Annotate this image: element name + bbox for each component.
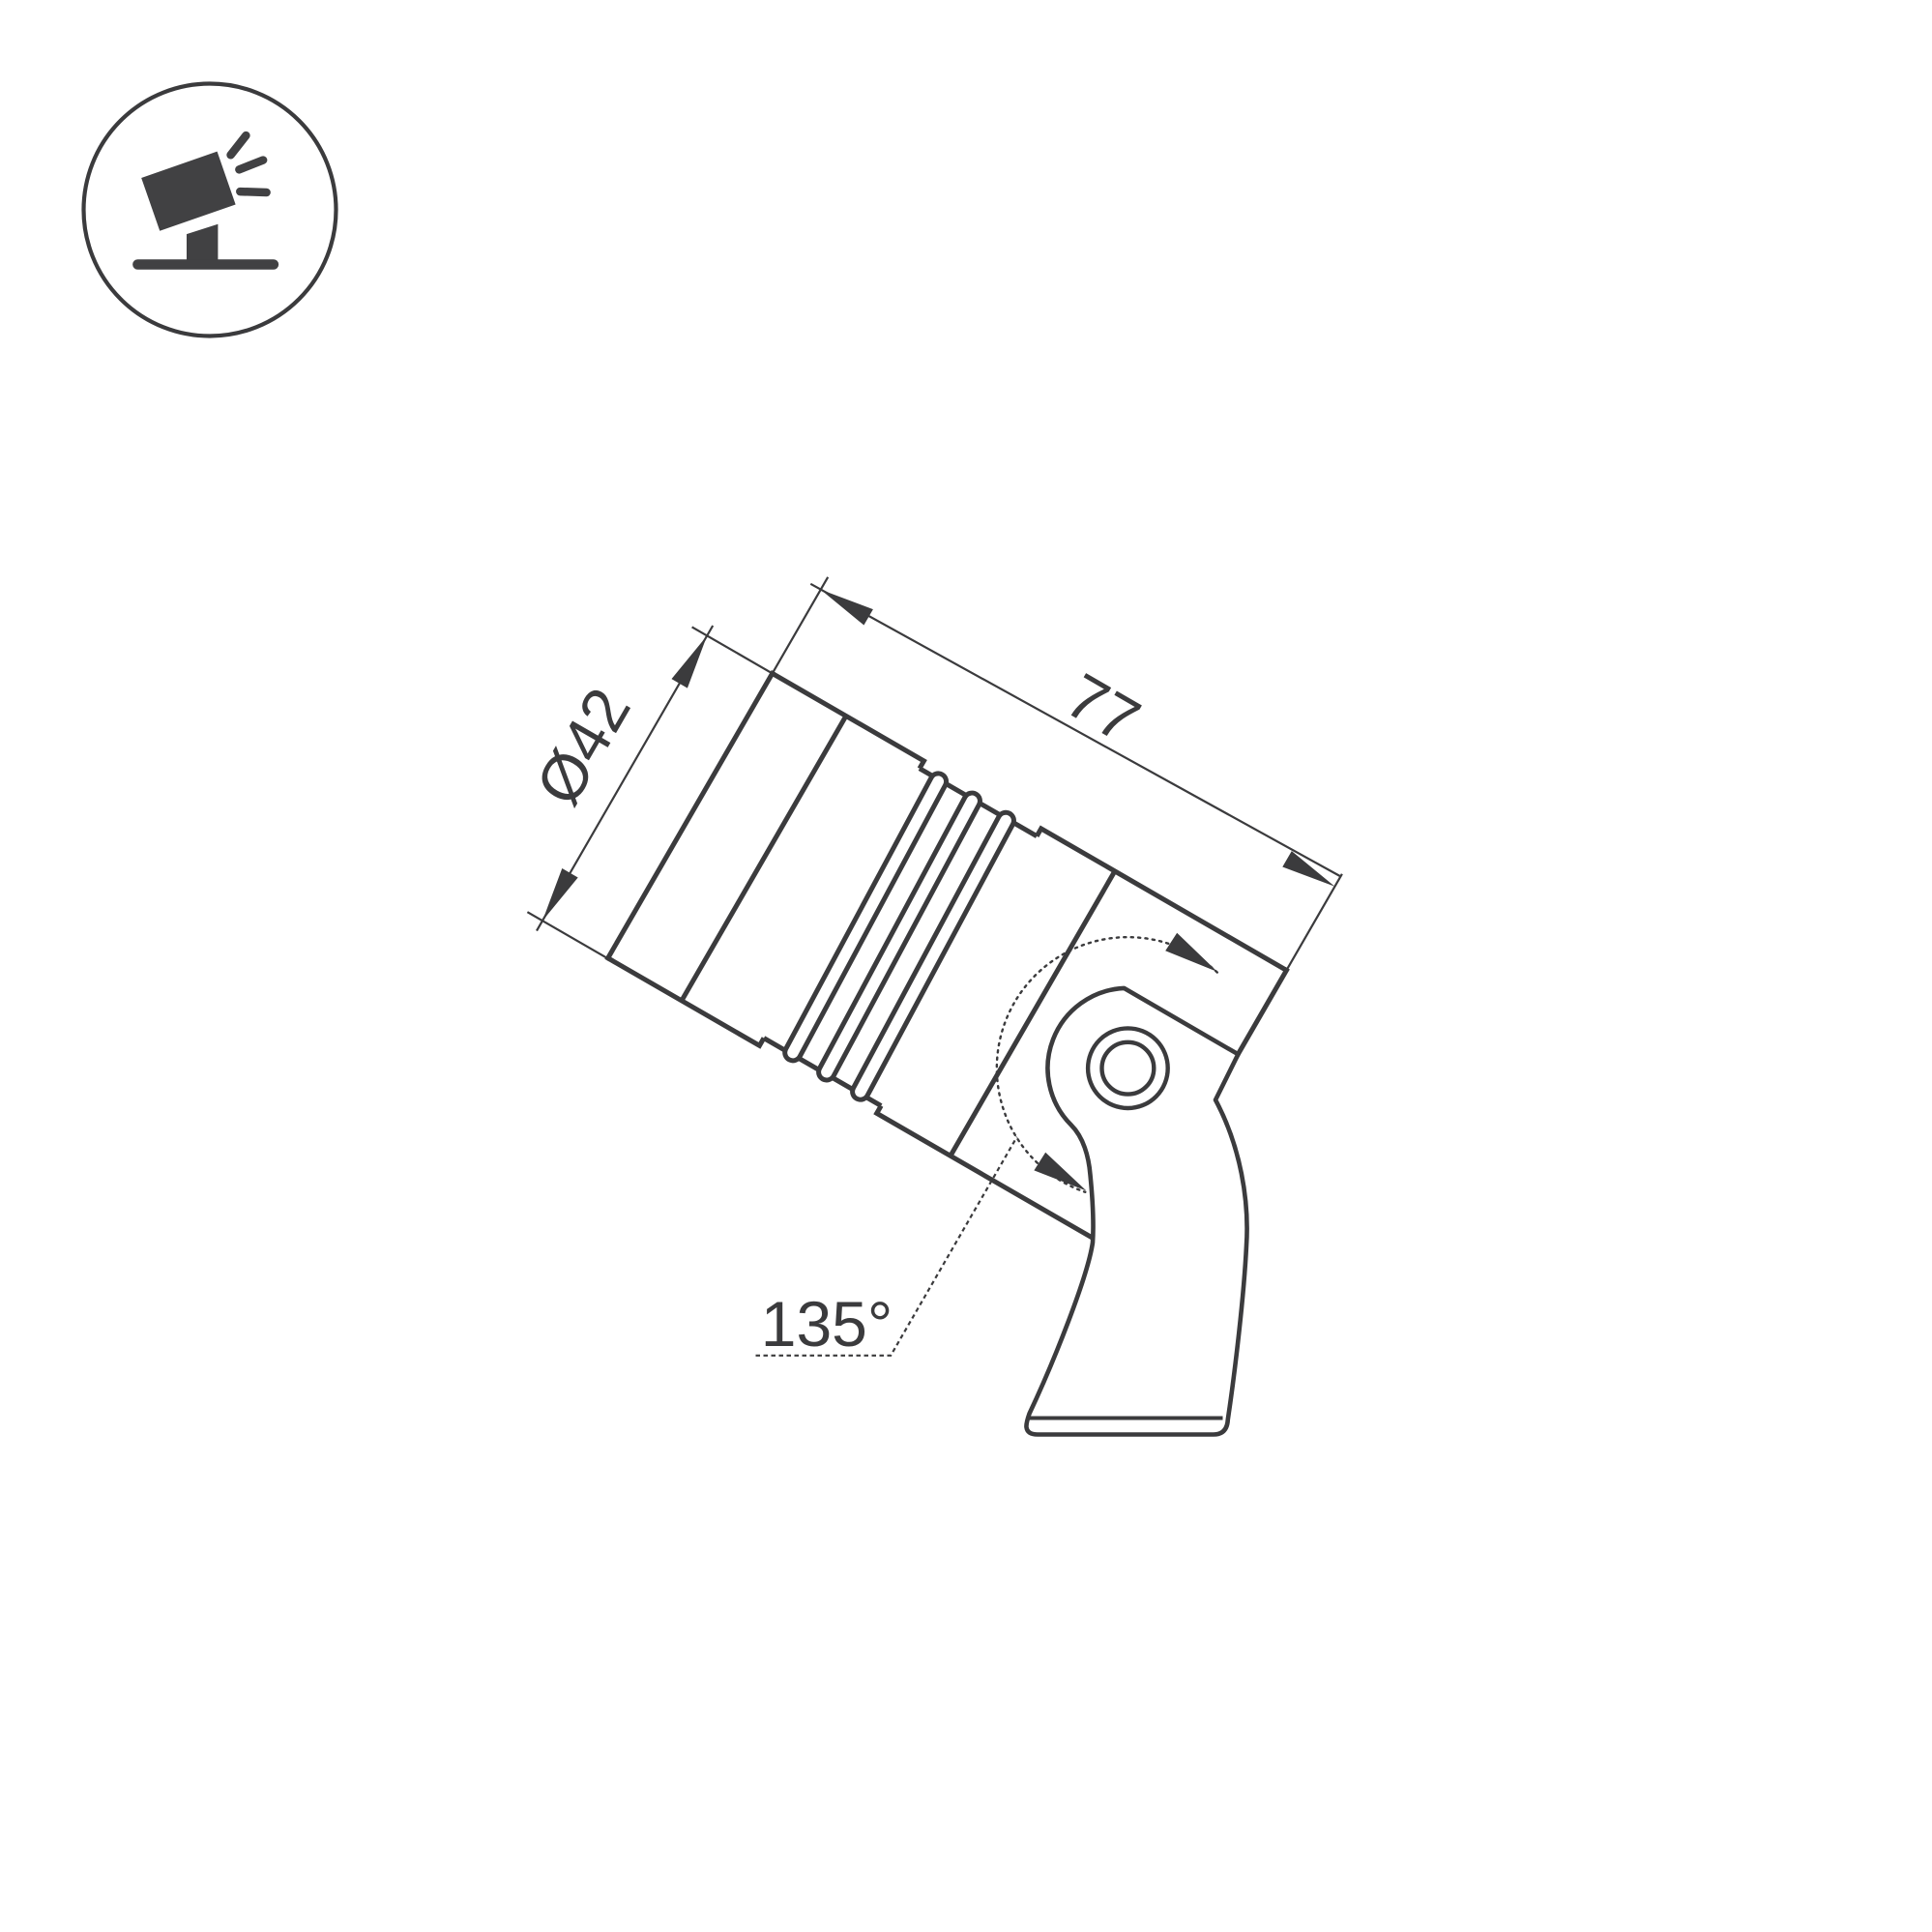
svg-text:77: 77 — [1054, 659, 1152, 757]
svg-text:135°: 135° — [761, 1288, 893, 1360]
svg-text:Ø42: Ø42 — [521, 676, 643, 816]
